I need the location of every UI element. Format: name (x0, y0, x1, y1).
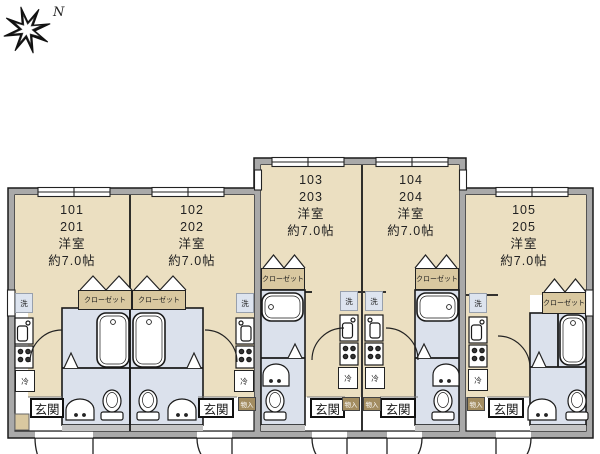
window (152, 188, 224, 197)
fridge-space-101: 冷 (15, 370, 35, 392)
unit-number: 104 (364, 172, 458, 189)
washer-space-101: 洗 (15, 293, 33, 313)
toilet (432, 390, 454, 420)
unit-104-label: 104 204 洋室 約7.0帖 (364, 172, 458, 240)
storage-box-101 (15, 414, 29, 430)
floor-plan: N 101 201 洋室 約7.0帖 102 202 洋室 約7.0帖 103 … (0, 0, 600, 454)
window (8, 290, 16, 316)
unit-number: 201 (25, 219, 119, 236)
unit-105-label: 105 205 洋室 約7.0帖 (477, 202, 571, 270)
toilet (264, 390, 286, 420)
stove (365, 343, 383, 365)
fridge-space-104: 冷 (365, 367, 385, 389)
room-size: 約7.0帖 (264, 223, 358, 240)
entrance-101: 玄関 (30, 398, 64, 418)
kitchen-sink (15, 318, 33, 344)
storage-102: 物入 (238, 397, 256, 411)
entrance-104: 玄関 (380, 398, 416, 418)
washer-space-103: 洗 (340, 291, 358, 311)
unit-103-label: 103 203 洋室 約7.0帖 (264, 172, 358, 240)
room-type: 洋室 (477, 236, 571, 253)
window (376, 158, 448, 167)
window (255, 170, 262, 190)
storage-104: 物入 (363, 397, 381, 411)
unit-number: 102 (145, 202, 239, 219)
kitchen-sink (236, 318, 254, 344)
window (272, 158, 344, 167)
storage-105: 物入 (467, 397, 485, 411)
room-type: 洋室 (364, 206, 458, 223)
washbasin (263, 364, 289, 386)
room-type: 洋室 (264, 206, 358, 223)
toilet (137, 390, 159, 420)
room-size: 約7.0帖 (25, 253, 119, 270)
room-type: 洋室 (25, 236, 119, 253)
unit-number: 105 (477, 202, 571, 219)
bathtub (97, 313, 129, 367)
entrance-103: 玄関 (310, 398, 345, 418)
bathtub (417, 293, 458, 321)
washer-space-102: 洗 (236, 293, 254, 313)
fridge-space-102: 冷 (234, 370, 254, 392)
storage-103: 物入 (342, 397, 360, 411)
compass-north-label: N (53, 5, 64, 20)
unit-number: 203 (264, 189, 358, 206)
unit-number: 103 (264, 172, 358, 189)
room-type: 洋室 (145, 236, 239, 253)
unit-number: 101 (25, 202, 119, 219)
washbasin (66, 399, 94, 420)
room-size: 約7.0帖 (477, 253, 571, 270)
bathtub (133, 313, 165, 367)
stove (236, 346, 254, 368)
unit-number: 204 (364, 189, 458, 206)
bathtub (560, 315, 586, 365)
fridge-space-105: 冷 (468, 369, 488, 391)
unit-number: 202 (145, 219, 239, 236)
window (460, 170, 467, 190)
window (586, 290, 594, 316)
window (496, 188, 568, 197)
entrance-105: 玄関 (488, 398, 524, 418)
toilet (101, 390, 123, 420)
closet-103: クローゼット (261, 268, 305, 290)
closet-102: クローゼット (132, 290, 186, 310)
kitchen-sink (365, 315, 383, 341)
stove (469, 345, 487, 367)
compass-icon (4, 7, 50, 53)
kitchen-sink (469, 317, 487, 343)
closet-104: クローゼット (415, 268, 459, 290)
closet-105: クローゼット (542, 292, 586, 314)
washbasin (168, 399, 196, 420)
entrance-102: 玄関 (198, 398, 234, 418)
washbasin (433, 364, 459, 386)
stove (340, 343, 358, 365)
washer-space-104: 洗 (365, 291, 383, 311)
entrance-door-arc-icons (35, 438, 531, 454)
room-size: 約7.0帖 (364, 223, 458, 240)
unit-number: 205 (477, 219, 571, 236)
washer-space-105: 洗 (469, 293, 487, 313)
unit-102-label: 102 202 洋室 約7.0帖 (145, 202, 239, 270)
room-size: 約7.0帖 (145, 253, 239, 270)
bathtub (262, 293, 303, 321)
fridge-space-103: 冷 (338, 367, 358, 389)
toilet (566, 390, 588, 420)
closet-101: クローゼット (78, 290, 132, 310)
washbasin (528, 399, 556, 420)
window (38, 188, 110, 197)
unit-101-label: 101 201 洋室 約7.0帖 (25, 202, 119, 270)
